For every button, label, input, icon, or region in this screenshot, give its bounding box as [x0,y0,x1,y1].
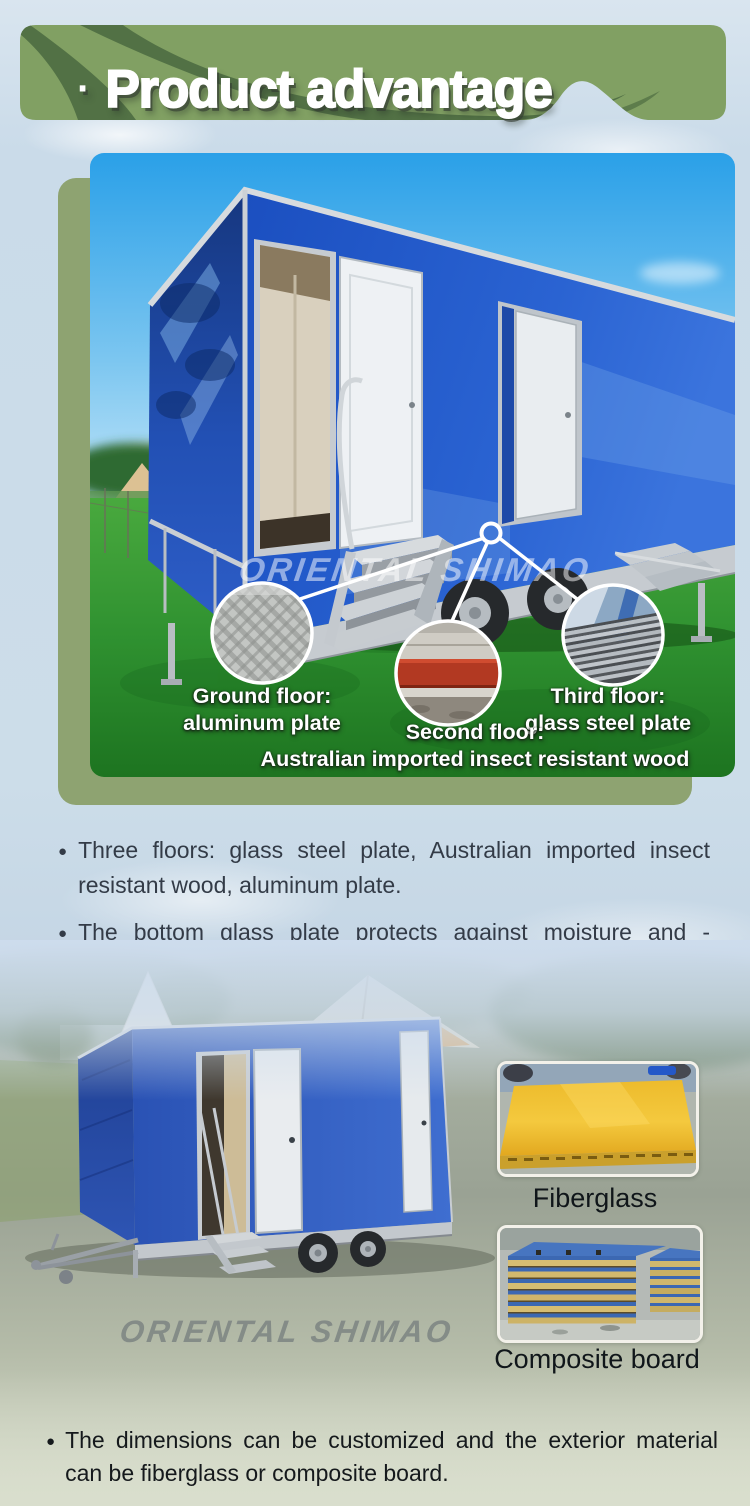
fiberglass-image [497,1061,699,1177]
bullet-item-floors: ● Three floors: glass steel plate, Austr… [58,833,710,902]
trailer-site-illustration [0,940,750,1506]
composite-board-illustration [500,1228,700,1340]
composite-board-image [497,1225,703,1343]
main-figure-photo: ORIENTAL SHIMAO Ground floor: aluminum p… [90,153,735,777]
materials-section: ORIENTAL SHIMAO [0,940,750,1506]
callout-circle-wood [396,619,500,727]
customization-note: ● The dimensions can be customized and t… [46,1424,718,1491]
watermark: ORIENTAL SHIMAO [192,551,637,589]
title-text: Product advantage [105,59,551,120]
header-banner: · Product advantage [20,25,726,120]
fiberglass-panel-illustration [500,1064,696,1174]
composite-board-label: Composite board [467,1344,727,1375]
title-bullet-dot: · [78,70,88,109]
product-advantage-page: · Product advantage [0,0,750,1506]
fiberglass-label: Fiberglass [497,1183,693,1214]
bullet-text: Three floors: glass steel plate, Austral… [78,833,710,902]
page-title: · Product advantage [78,59,699,119]
note-text: The dimensions can be customized and the… [65,1424,718,1491]
callout-label-second-floor: Second floor: Australian imported insect… [150,719,735,772]
bullet-dot: ● [46,1424,55,1491]
watermark: ORIENTAL SHIMAO [117,1314,442,1350]
bullet-dot: ● [58,833,67,902]
